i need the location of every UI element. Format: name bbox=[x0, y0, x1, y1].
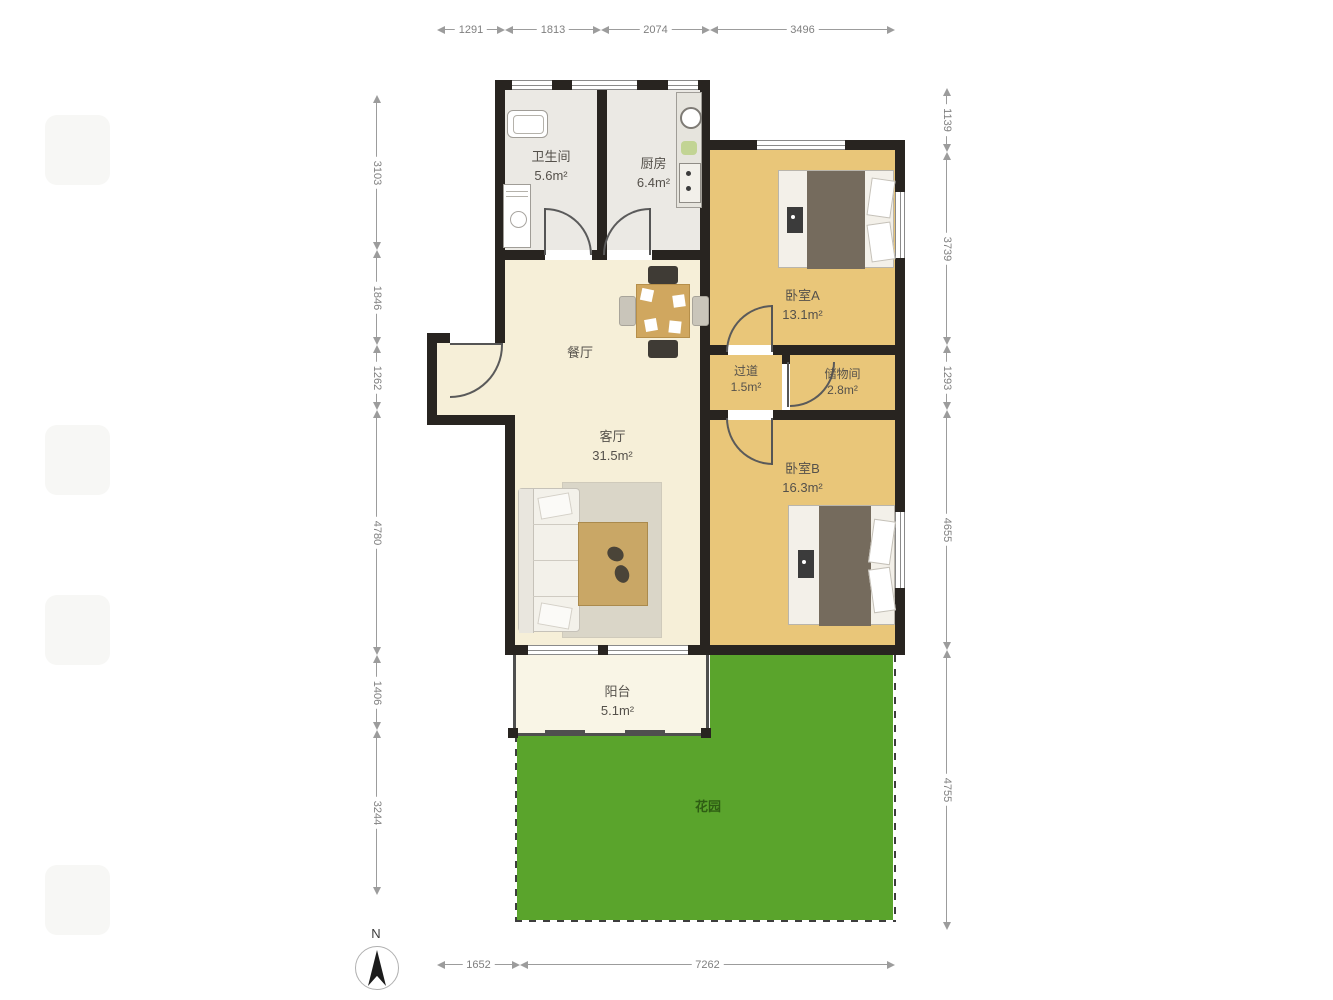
dimension-value: 3739 bbox=[941, 232, 953, 264]
dimension-value: 1652 bbox=[462, 959, 494, 971]
chair-icon bbox=[619, 296, 636, 326]
room-area: 16.3m² bbox=[710, 479, 895, 498]
window bbox=[528, 645, 598, 655]
chair-icon bbox=[648, 340, 678, 358]
room-label-kitchen: 厨房 6.4m² bbox=[607, 155, 700, 193]
watermark bbox=[45, 865, 110, 935]
wall bbox=[597, 80, 607, 260]
wall bbox=[700, 150, 710, 645]
bed-icon bbox=[788, 505, 895, 625]
garden-dashed-border bbox=[515, 920, 896, 922]
room-name: 卧室A bbox=[710, 287, 895, 306]
compass-circle-icon bbox=[355, 946, 399, 990]
dimension-segment: 1846 bbox=[371, 250, 383, 345]
door-leaf bbox=[450, 343, 503, 345]
dimension-segment: 2074 bbox=[601, 24, 710, 36]
room-label-bedroom-b: 卧室B 16.3m² bbox=[710, 460, 895, 498]
room-label-storage: 储物间 2.8m² bbox=[790, 366, 895, 398]
room-name: 花园 bbox=[658, 798, 758, 817]
chair-icon bbox=[692, 296, 709, 326]
window bbox=[572, 80, 637, 90]
balcony-window bbox=[545, 730, 585, 736]
dimension-value: 4755 bbox=[941, 774, 953, 806]
dimension-segment: 3739 bbox=[941, 152, 953, 345]
floor-plan-canvas: 卫生间 5.6m² 厨房 6.4m² 卧室A 13.1m² 餐厅 过道 1.5m… bbox=[0, 0, 1333, 1000]
room-area: 1.5m² bbox=[708, 379, 784, 395]
dimension-value: 1406 bbox=[371, 676, 383, 708]
window bbox=[608, 645, 688, 655]
dimension-value: 1262 bbox=[371, 361, 383, 393]
dimension-segment: 4655 bbox=[941, 410, 953, 650]
balcony-wall bbox=[706, 655, 709, 736]
room-area: 6.4m² bbox=[607, 174, 700, 193]
wall bbox=[701, 728, 711, 738]
room-label-dining: 餐厅 bbox=[530, 344, 630, 363]
balcony-window bbox=[625, 730, 665, 736]
window bbox=[895, 192, 905, 258]
dimension-value: 4655 bbox=[941, 514, 953, 546]
room-area: 31.5m² bbox=[540, 447, 685, 466]
dimension-value: 1139 bbox=[941, 104, 953, 136]
window bbox=[895, 512, 905, 588]
room-area: 5.1m² bbox=[540, 702, 695, 721]
garden-area bbox=[517, 735, 710, 920]
dimension-segment: 1652 bbox=[437, 959, 520, 971]
balcony-wall bbox=[513, 655, 516, 735]
dimension-value: 3244 bbox=[371, 796, 383, 828]
window bbox=[512, 80, 552, 90]
dimension-segment: 1406 bbox=[371, 655, 383, 730]
dimension-segment: 3244 bbox=[371, 730, 383, 895]
wall bbox=[598, 645, 608, 655]
dimension-segment: 1291 bbox=[437, 24, 505, 36]
wall bbox=[427, 333, 437, 425]
dimension-segment: 1813 bbox=[505, 24, 601, 36]
watermark bbox=[45, 425, 110, 495]
garden-dashed-border bbox=[894, 655, 896, 922]
wall bbox=[508, 728, 518, 738]
dimension-value: 1293 bbox=[941, 361, 953, 393]
door-leaf bbox=[544, 208, 546, 255]
wall bbox=[505, 415, 515, 655]
dimension-value: 4780 bbox=[371, 516, 383, 548]
window bbox=[668, 80, 698, 90]
room-area: 13.1m² bbox=[710, 306, 895, 325]
bed-icon bbox=[778, 170, 894, 268]
watermark bbox=[45, 115, 110, 185]
dimension-value: 1813 bbox=[537, 24, 569, 36]
room-label-garden: 花园 bbox=[658, 798, 758, 817]
room-label-living: 客厅 31.5m² bbox=[540, 428, 685, 466]
window bbox=[757, 140, 845, 150]
wall bbox=[700, 645, 905, 655]
dining-table-icon bbox=[636, 284, 690, 338]
dimension-segment: 4755 bbox=[941, 650, 953, 930]
door-leaf bbox=[649, 208, 651, 255]
dimension-segment: 7262 bbox=[520, 959, 895, 971]
washing-machine-icon bbox=[503, 184, 531, 248]
room-label-bedroom-a: 卧室A 13.1m² bbox=[710, 287, 895, 325]
wall bbox=[427, 333, 450, 343]
sink-icon bbox=[507, 110, 548, 138]
sofa-icon bbox=[518, 488, 580, 632]
room-name: 过道 bbox=[708, 363, 784, 379]
room-area: 2.8m² bbox=[790, 382, 895, 398]
room-name: 卧室B bbox=[710, 460, 895, 479]
dimension-segment: 1293 bbox=[941, 345, 953, 410]
wall bbox=[427, 415, 515, 425]
door-leaf bbox=[787, 362, 789, 407]
north-arrow-icon bbox=[368, 950, 386, 986]
dimension-value: 1846 bbox=[371, 281, 383, 313]
room-name: 客厅 bbox=[540, 428, 685, 447]
room-name: 餐厅 bbox=[530, 344, 630, 363]
compass-label: N bbox=[352, 926, 400, 941]
dimension-segment: 4780 bbox=[371, 410, 383, 655]
wall bbox=[688, 645, 710, 655]
wall bbox=[773, 410, 905, 420]
dimension-value: 1291 bbox=[455, 24, 487, 36]
wall bbox=[495, 250, 545, 260]
room-label-hallway: 过道 1.5m² bbox=[708, 363, 784, 395]
door-leaf bbox=[771, 418, 773, 465]
room-area: 5.6m² bbox=[505, 167, 597, 186]
dimension-value: 7262 bbox=[691, 959, 723, 971]
room-name: 阳台 bbox=[540, 683, 695, 702]
room-label-balcony: 阳台 5.1m² bbox=[540, 683, 695, 721]
north-compass: N bbox=[352, 926, 400, 992]
dimension-value: 3496 bbox=[786, 24, 818, 36]
dimension-value: 3103 bbox=[371, 156, 383, 188]
room-name: 卫生间 bbox=[505, 148, 597, 167]
balcony-wall bbox=[513, 733, 709, 736]
garden-dashed-border bbox=[515, 735, 517, 922]
watermark bbox=[45, 595, 110, 665]
dimension-segment: 1262 bbox=[371, 345, 383, 410]
wall bbox=[773, 345, 905, 355]
coffee-table-icon bbox=[578, 522, 648, 606]
dimension-value: 2074 bbox=[639, 24, 671, 36]
garden-area bbox=[710, 655, 893, 920]
dimension-segment: 3496 bbox=[710, 24, 895, 36]
chair-icon bbox=[648, 266, 678, 284]
room-label-bathroom: 卫生间 5.6m² bbox=[505, 148, 597, 186]
dimension-segment: 1139 bbox=[941, 88, 953, 152]
room-name: 厨房 bbox=[607, 155, 700, 174]
dimension-segment: 3103 bbox=[371, 95, 383, 250]
room-name: 储物间 bbox=[790, 366, 895, 382]
